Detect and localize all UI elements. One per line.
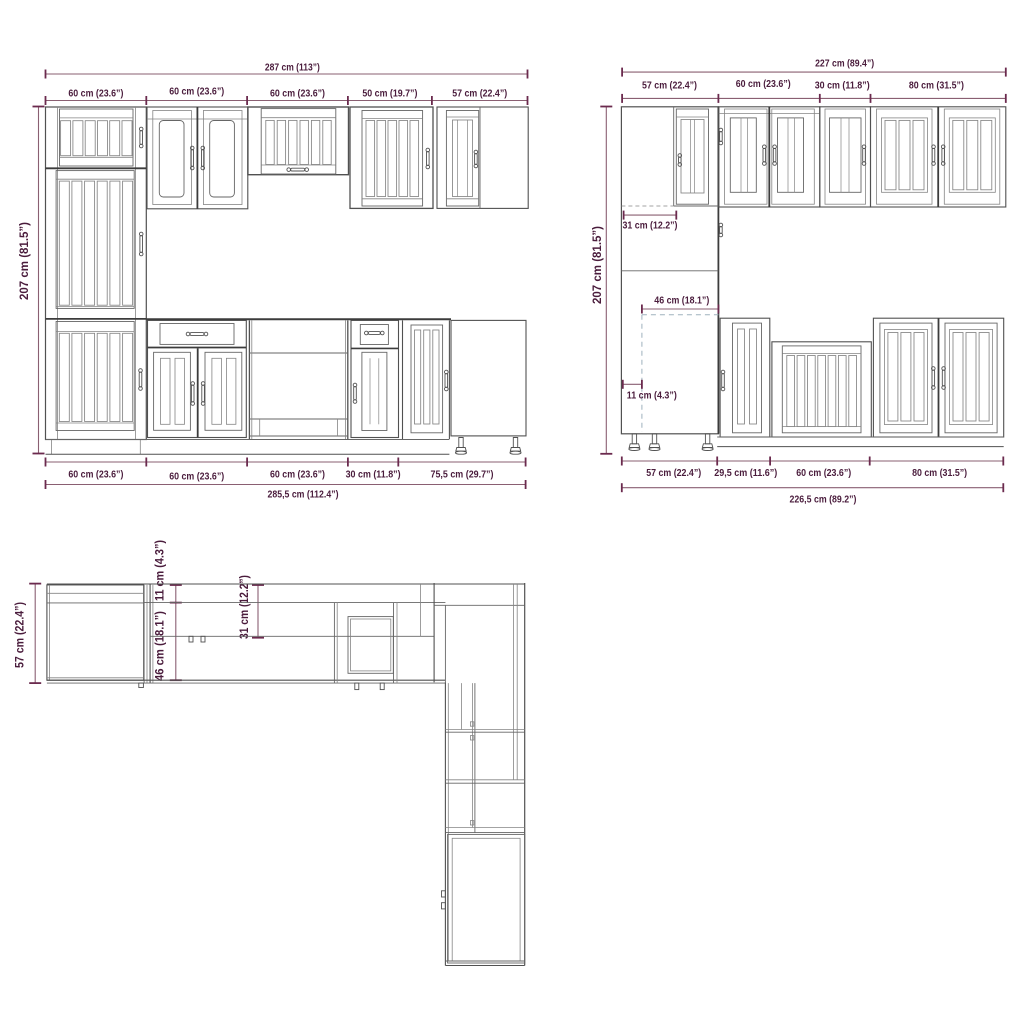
svg-text:57 cm (22.4”): 57 cm (22.4”) bbox=[13, 602, 27, 668]
svg-text:31 cm (12.2”): 31 cm (12.2”) bbox=[237, 575, 251, 639]
svg-text:75,5 cm (29.7”): 75,5 cm (29.7”) bbox=[431, 470, 494, 481]
svg-text:29,5 cm (11.6”): 29,5 cm (11.6”) bbox=[714, 468, 777, 479]
svg-text:60 cm (23.6”): 60 cm (23.6”) bbox=[796, 468, 851, 479]
svg-text:80 cm (31.5”): 80 cm (31.5”) bbox=[909, 81, 964, 92]
svg-text:11 cm (4.3”): 11 cm (4.3”) bbox=[627, 391, 677, 402]
svg-text:60 cm (23.6”): 60 cm (23.6”) bbox=[68, 470, 123, 481]
svg-text:30 cm (11.8”): 30 cm (11.8”) bbox=[346, 470, 401, 481]
svg-text:57 cm (22.4”): 57 cm (22.4”) bbox=[452, 89, 507, 100]
svg-text:31 cm (12.2”): 31 cm (12.2”) bbox=[623, 221, 678, 232]
svg-text:50 cm (19.7”): 50 cm (19.7”) bbox=[362, 89, 417, 100]
svg-text:46 cm (18.1”): 46 cm (18.1”) bbox=[152, 611, 166, 681]
svg-text:285,5 cm (112.4”): 285,5 cm (112.4”) bbox=[268, 490, 339, 501]
svg-text:30 cm (11.8”): 30 cm (11.8”) bbox=[815, 81, 870, 92]
svg-text:207 cm (81.5”): 207 cm (81.5”) bbox=[17, 222, 31, 300]
svg-text:60 cm (23.6”): 60 cm (23.6”) bbox=[270, 89, 325, 100]
svg-text:287 cm (113”): 287 cm (113”) bbox=[265, 63, 320, 74]
svg-text:227 cm (89.4”): 227 cm (89.4”) bbox=[815, 59, 874, 70]
svg-text:57 cm (22.4”): 57 cm (22.4”) bbox=[646, 468, 701, 479]
svg-text:60 cm (23.6”): 60 cm (23.6”) bbox=[169, 87, 224, 98]
svg-text:60 cm (23.6”): 60 cm (23.6”) bbox=[736, 79, 791, 90]
svg-text:46 cm (18.1”): 46 cm (18.1”) bbox=[654, 296, 709, 307]
svg-text:207 cm (81.5”): 207 cm (81.5”) bbox=[590, 226, 604, 304]
svg-text:226,5 cm (89.2”): 226,5 cm (89.2”) bbox=[790, 495, 857, 506]
svg-text:80 cm (31.5”): 80 cm (31.5”) bbox=[912, 468, 967, 479]
svg-text:57 cm (22.4”): 57 cm (22.4”) bbox=[642, 81, 697, 92]
svg-text:11 cm (4.3”): 11 cm (4.3”) bbox=[152, 540, 166, 601]
svg-text:60 cm (23.6”): 60 cm (23.6”) bbox=[68, 89, 123, 100]
svg-text:60 cm (23.6”): 60 cm (23.6”) bbox=[270, 470, 325, 481]
svg-text:60 cm (23.6”): 60 cm (23.6”) bbox=[169, 472, 224, 483]
